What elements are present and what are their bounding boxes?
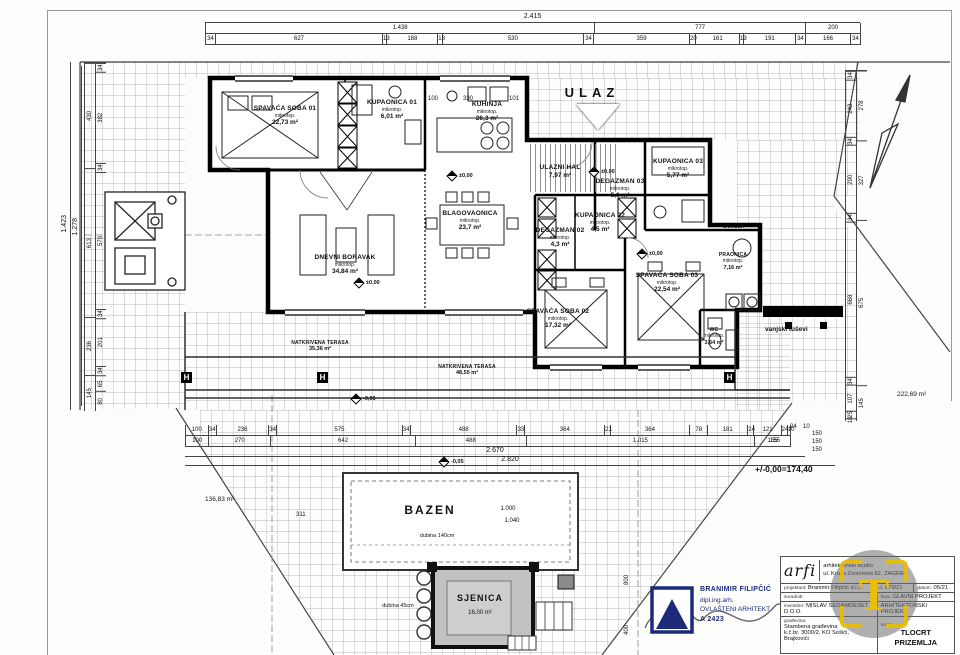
dim-value: 2.670 bbox=[484, 447, 506, 454]
dim-value: 107 bbox=[846, 385, 856, 411]
dim-value: 488 bbox=[411, 425, 517, 435]
field-nacrt: nacrt TLOCRT PRIZEMLJA bbox=[878, 617, 954, 653]
dim-value: 188 bbox=[387, 34, 438, 44]
dim-misc-24: 24 bbox=[790, 424, 797, 431]
elevation-value: ±0,00 bbox=[601, 169, 615, 175]
studio-info: arhitektonski studio ul. Kralja Zvonimir… bbox=[820, 562, 954, 578]
dim-value: 34 bbox=[96, 63, 106, 72]
elevation-diamond-icon bbox=[588, 166, 599, 177]
room-name: BLAGOVAONICA bbox=[442, 210, 497, 218]
dim-value: 34 bbox=[96, 309, 106, 318]
field-label: suradnik: bbox=[784, 595, 803, 600]
dim-value: 613 bbox=[85, 168, 95, 317]
elevation-marker: ±0,00 bbox=[638, 250, 663, 258]
field-gradjevina: građevina: Stambena građevina k.č.br. 30… bbox=[781, 617, 878, 653]
dim-value: 364 bbox=[611, 425, 691, 435]
dim-chain-left-segments: 343823457934201346580 bbox=[95, 62, 106, 411]
room-area: 5,0 m² bbox=[596, 192, 645, 200]
dim-value: 668 bbox=[846, 222, 856, 377]
field-label: projektant: bbox=[784, 586, 806, 591]
room-label-dnevni-boravak: DNEVNI BORAVAK mikrotop. 34,84 m² bbox=[314, 254, 375, 277]
dim-value: 430 bbox=[85, 63, 95, 168]
room-name: SPAVAĆA SOBA 03 bbox=[636, 272, 698, 280]
elevation-diamond-icon bbox=[446, 170, 457, 181]
dim-value: 2.820 bbox=[499, 456, 521, 463]
dim-misc: 330 bbox=[463, 96, 473, 103]
elevation-diamond-icon bbox=[353, 277, 364, 288]
title-block-row-investitor: investitor: MISLAV SEDAMDESET D.O.O. ARH… bbox=[781, 602, 954, 617]
architect-license: OVLAŠTENI ARHITEKT bbox=[700, 606, 770, 613]
dim-value: 201 bbox=[96, 318, 106, 366]
field-faza-2: ARHITEKTONSKI PROJEKT bbox=[878, 602, 954, 616]
dim-value: 78 bbox=[690, 425, 708, 435]
dim-value: 161 bbox=[696, 34, 740, 44]
dim-value: 675 bbox=[857, 220, 867, 385]
dim-chain-left-spans: 430613236145 bbox=[84, 62, 95, 411]
room-label-spavaca-soba-03: SPAVAĆA SOBA 03 mikrotop. 22,54 m² bbox=[636, 272, 698, 295]
dim-value: 579 bbox=[96, 172, 106, 309]
field-suradnik: suradnik: bbox=[781, 593, 878, 601]
entrance-label: ULAZ bbox=[565, 86, 620, 100]
elevation-diamond-icon bbox=[438, 456, 449, 467]
studio-logo: arfi bbox=[781, 560, 820, 581]
title-block: arfi arhitektonski studio ul. Kralja Zvo… bbox=[780, 556, 955, 654]
pool-dim-2: 1.040 bbox=[504, 518, 519, 525]
dim-value: 278 bbox=[857, 71, 867, 140]
dim-value: 327 bbox=[857, 140, 867, 220]
dim-value: 34 bbox=[846, 71, 856, 80]
field-label: faza: bbox=[881, 595, 891, 600]
dim-value: 121 bbox=[754, 425, 781, 435]
dim-value: 100 bbox=[186, 425, 209, 435]
dim-value: 382 bbox=[96, 72, 106, 163]
room-name: SPAVAĆA SOBA 02 bbox=[527, 308, 589, 316]
room-name: SPAVAĆA SOBA 01 bbox=[254, 105, 316, 113]
field-td: t.d. 879/21 bbox=[874, 584, 915, 592]
outdoor-kitchen bbox=[105, 192, 185, 290]
dim-value: 290 bbox=[846, 145, 856, 213]
architect-stamp: BRANIMIR FILIPČIĆ dipl.ing.arh. OVLAŠTEN… bbox=[648, 585, 771, 626]
dim-chain-bottom-row1: 1003423634575344883336421364781812412124… bbox=[185, 425, 791, 436]
field-value: GLAVNI PROJEKT bbox=[893, 594, 942, 600]
dim-value: 575 bbox=[277, 425, 402, 435]
dim-top-overall: 2.415 bbox=[205, 12, 860, 23]
dim-value: 488 bbox=[416, 436, 526, 446]
room-label-degazman-03: DEGAZMAN 03 mikrotop. 5,0 m² bbox=[596, 178, 645, 201]
room-label-spavaca-soba-01: SPAVAĆA SOBA 01 mikrotop. 22,73 m² bbox=[254, 105, 316, 128]
elevation-value: ±0,00 bbox=[366, 280, 380, 286]
dim-left-inner: 1.278 bbox=[72, 218, 79, 236]
elevation-value: -0,05 bbox=[363, 396, 376, 402]
room-label-kupaonica-03: KUPAONICA 03 mikrotop. 5,77 m² bbox=[653, 158, 703, 181]
drawing-title-line1: TLOCRT bbox=[881, 628, 951, 638]
dim-value: 33 bbox=[517, 425, 525, 435]
dim-bottom-overall-2: 2.820 bbox=[185, 455, 835, 466]
room-area: 22,54 m² bbox=[636, 286, 698, 294]
title-block-row-suradnik: suradnik: faza: GLAVNI PROJEKT bbox=[781, 593, 954, 602]
dim-value: 145 bbox=[857, 385, 867, 421]
dim-value: 191 bbox=[744, 34, 796, 44]
room-area: 6,01 m² bbox=[367, 113, 417, 121]
dim-chain-top-segments: 3462713188135303435920161131913416634 bbox=[205, 34, 861, 45]
room-area: 17,32 m² bbox=[527, 322, 589, 330]
field-value: Branimir Filipčić d.i.a. bbox=[808, 585, 863, 591]
field-label: t.d. bbox=[877, 586, 884, 591]
room-label-wc: WC mikrotop. 3,64 m² bbox=[704, 327, 725, 346]
room-area: 7,97 m² bbox=[540, 172, 581, 180]
dim-value: 1.438 bbox=[206, 23, 595, 33]
terrace-label-2: NATKRIVENA TERASA 48,55 m² bbox=[438, 364, 496, 377]
entrance-arrow-icon bbox=[576, 104, 620, 130]
room-name: ULAZNI HAL bbox=[540, 164, 581, 172]
dim-value: 627 bbox=[216, 34, 383, 44]
gazebo-area: 16,00 m² bbox=[468, 610, 492, 617]
dim-value: 65 bbox=[96, 375, 106, 391]
pool-depth-2: dubina 45cm bbox=[382, 603, 414, 609]
dim-value: 777 bbox=[595, 23, 806, 33]
dim-value: 150 bbox=[812, 446, 822, 454]
column-marker-h: H bbox=[317, 372, 328, 383]
studio-name: arhitektonski studio bbox=[823, 563, 951, 569]
room-label-blagovaonica: BLAGOVAONICA mikrotop. 23,7 m² bbox=[442, 210, 497, 233]
architect-name: BRANIMIR FILIPČIĆ bbox=[700, 586, 771, 593]
elevation-diamond-icon bbox=[636, 248, 647, 259]
room-name: BOJLER bbox=[723, 224, 744, 230]
elevation-value: ±0,00 bbox=[459, 173, 473, 179]
dim-value: 166 bbox=[806, 34, 851, 44]
dim-value: 236 bbox=[85, 317, 95, 375]
dim-value: 2.415 bbox=[522, 13, 544, 20]
room-area: 48,55 m² bbox=[438, 370, 496, 377]
dim-value: 200 bbox=[806, 23, 861, 33]
elevation-diamond-icon bbox=[350, 393, 361, 404]
dim-value: 34 bbox=[96, 366, 106, 375]
dim-stack-150: 150150150 bbox=[812, 430, 822, 454]
room-name: DNEVNI BORAVAK bbox=[314, 254, 375, 262]
title-block-row-projektant: projektant: Branimir Filipčić d.i.a. t.d… bbox=[781, 584, 954, 593]
dim-value: 642 bbox=[271, 436, 416, 446]
dim-value: 530 bbox=[443, 34, 584, 44]
dim-value: 34 bbox=[846, 213, 856, 222]
dim-value: 270 bbox=[209, 436, 271, 446]
dim-chain-right-spans: 278327675145 bbox=[856, 70, 867, 421]
room-area: 34,84 m² bbox=[314, 268, 375, 276]
column-marker-h: H bbox=[181, 372, 192, 383]
dim-misc-155: 155 bbox=[770, 438, 780, 445]
elevation-marker: ±0,00 bbox=[355, 279, 380, 287]
room-name: DEGAZMAN 03 bbox=[596, 178, 645, 186]
title-block-row-gradjevina: građevina: Stambena građevina k.č.br. 30… bbox=[781, 617, 954, 653]
architect-license-number: A 2423 bbox=[700, 616, 724, 623]
elevation-value: ±0,00 bbox=[649, 251, 663, 257]
dim-value: 34 bbox=[846, 137, 856, 146]
room-sub: mikrotop. bbox=[704, 333, 725, 339]
room-label-bojler: BOJLER bbox=[723, 224, 744, 230]
room-label-ulazni-hal: ULAZNI HAL 7,97 m² bbox=[540, 164, 581, 180]
dim-value: 236 bbox=[217, 425, 269, 435]
room-area: 4,5 m² bbox=[575, 226, 625, 234]
dim-value: 34 bbox=[584, 34, 594, 44]
room-name: KUPAONICA 02 bbox=[575, 212, 625, 220]
plot-area-right-label: 222,69 m² bbox=[897, 391, 926, 398]
field-faza-1: faza: GLAVNI PROJEKT bbox=[878, 593, 954, 601]
title-block-header: arfi arhitektonski studio ul. Kralja Zvo… bbox=[781, 557, 954, 584]
room-label-kupaonica-01: KUPAONICA 01 mikrotop. 6,01 m² bbox=[367, 99, 417, 122]
dim-misc: 100 bbox=[428, 96, 438, 103]
room-area: 22,73 m² bbox=[254, 119, 316, 127]
studio-address: ul. Kralja Zvonimira 62, ZAGREB bbox=[823, 571, 951, 577]
terrace-label-1: NATKRIVENA TERASA 35,36 m² bbox=[291, 340, 349, 353]
dim-value: 34 bbox=[796, 34, 806, 44]
dim-misc: 400 bbox=[624, 625, 631, 635]
dim-value: 181 bbox=[708, 425, 748, 435]
field-value: 05/21 bbox=[934, 585, 949, 591]
dim-left-line-1 bbox=[70, 62, 71, 410]
dim-value: 100 bbox=[186, 436, 209, 446]
architect-title: dipl.ing.arh. bbox=[700, 597, 734, 604]
dim-value: 10 bbox=[846, 418, 856, 421]
dim-value: 242 bbox=[846, 80, 856, 137]
drawing-title-line2: PRIZEMLJA bbox=[881, 638, 951, 648]
architect-stamp-text: BRANIMIR FILIPČIĆ dipl.ing.arh. OVLAŠTEN… bbox=[700, 585, 771, 626]
dim-value: 359 bbox=[594, 34, 690, 44]
dim-value: 34 bbox=[269, 425, 277, 435]
dim-value: 34 bbox=[209, 425, 217, 435]
field-value: 879/21 bbox=[885, 585, 903, 591]
room-area: 7,16 m² bbox=[719, 265, 747, 272]
pool-label: BAZEN bbox=[404, 504, 455, 517]
room-area: 23,7 m² bbox=[442, 224, 497, 232]
pool-dim-1: 1.000 bbox=[500, 506, 515, 513]
dim-value: 1.015 bbox=[527, 436, 756, 446]
dim-misc-10: 10 bbox=[803, 424, 810, 431]
elevation-marker: -0,05 bbox=[440, 458, 464, 466]
room-label-praonica: PRAONICA mikrotop. 7,16 m² bbox=[719, 252, 747, 271]
north-arrow bbox=[870, 75, 910, 188]
gazebo bbox=[427, 562, 574, 650]
room-sub: mikrotop. bbox=[719, 258, 747, 264]
dim-value: 34 bbox=[96, 163, 106, 172]
dim-value: 34 bbox=[206, 34, 216, 44]
dim-value: 80 bbox=[96, 391, 106, 411]
elevation-marker: -0,05 bbox=[352, 395, 376, 403]
field-value: ARHITEKTONSKI PROJEKT bbox=[881, 603, 928, 615]
dim-value: 34 bbox=[403, 425, 411, 435]
dim-misc: 800 bbox=[624, 575, 631, 585]
elevation-marker: ±0,00 bbox=[448, 172, 473, 180]
elevation-value: -0,05 bbox=[451, 459, 464, 465]
room-name: KUHINJA bbox=[472, 101, 502, 109]
dim-chain-right-segments: 342423429034668341072510 bbox=[845, 70, 856, 421]
floorplan-sheet: { "sheet": { "drawing_title": "TLOCRT PR… bbox=[0, 0, 960, 655]
field-projektant: projektant: Branimir Filipčić d.i.a. bbox=[781, 584, 874, 592]
dim-value: 150 bbox=[812, 430, 822, 438]
elevation-marker: ±0,00 bbox=[590, 168, 615, 176]
field-datum: datum: 05/21 bbox=[914, 584, 954, 592]
room-label-kupaonica-02: KUPAONICA 02 mikrotop. 4,5 m² bbox=[575, 212, 625, 235]
room-area: 35,36 m² bbox=[291, 346, 349, 353]
room-label-kuhinja: KUHINJA mikrotop. 26,3 m² bbox=[472, 101, 502, 124]
room-area: 26,3 m² bbox=[472, 115, 502, 123]
field-investitor: investitor: MISLAV SEDAMDESET D.O.O. bbox=[781, 602, 878, 616]
dim-value: 145 bbox=[85, 375, 95, 411]
dim-left-overall: 1.423 bbox=[61, 215, 68, 233]
pool-depth-1: dubina 140cm bbox=[420, 533, 455, 539]
dim-value: 364 bbox=[525, 425, 605, 435]
room-area: 5,77 m² bbox=[653, 172, 703, 180]
plot-area-left-label: 136,83 m² bbox=[205, 496, 234, 503]
column-marker-h: H bbox=[724, 372, 735, 383]
dim-left-line-2 bbox=[81, 66, 82, 406]
room-label-spavaca-soba-02: SPAVAĆA SOBA 02 mikrotop. 17,32 m² bbox=[527, 308, 589, 331]
dim-misc: 101 bbox=[509, 96, 519, 103]
room-area: 4,3 m² bbox=[536, 241, 585, 249]
field-label: datum: bbox=[917, 586, 932, 591]
dim-value: 150 bbox=[812, 438, 822, 446]
gazebo-label: SJENICA bbox=[457, 594, 503, 604]
field-value: k.č.br. 3000/2, KO Sošići, Brajkovići bbox=[784, 630, 849, 642]
dim-value: 34 bbox=[851, 34, 861, 44]
room-name: KUPAONICA 03 bbox=[653, 158, 703, 166]
dim-misc: 311 bbox=[296, 512, 306, 519]
level-note: +/-0,00=174,40 bbox=[755, 465, 813, 474]
dim-chain-top-spans: 1.438777200 bbox=[205, 23, 861, 34]
outdoor-showers-label: vanjski tuševi bbox=[765, 326, 808, 333]
room-area: 3,64 m² bbox=[704, 340, 725, 347]
room-name: KUPAONICA 01 bbox=[367, 99, 417, 107]
